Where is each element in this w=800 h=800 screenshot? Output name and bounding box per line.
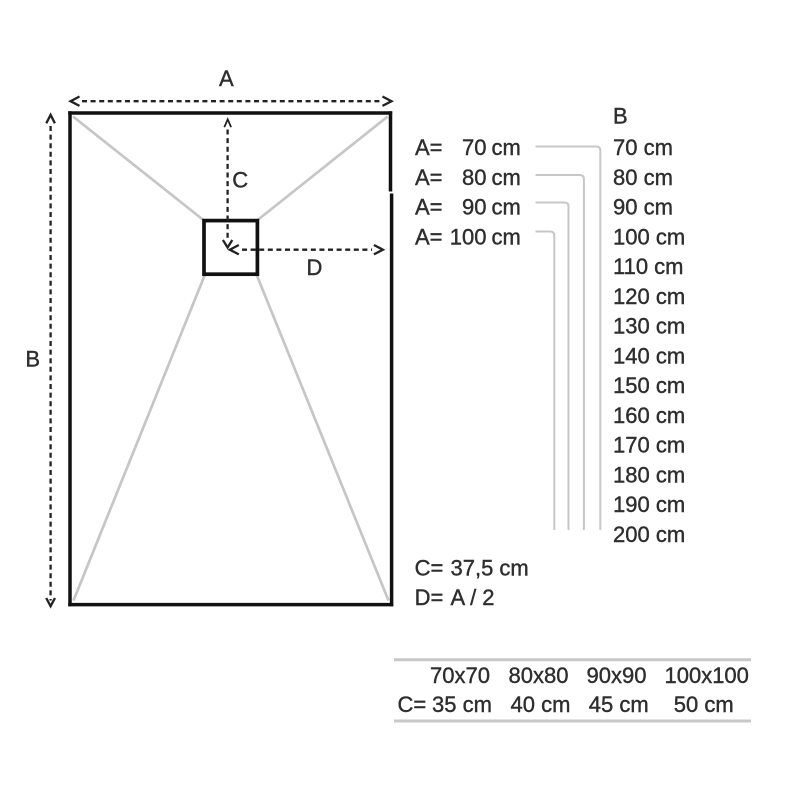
svg-text:70: 70 xyxy=(462,135,486,160)
svg-text:C=: C= xyxy=(398,692,427,717)
svg-text:70x70: 70x70 xyxy=(430,663,490,688)
svg-text:140 cm: 140 cm xyxy=(613,343,685,368)
svg-text:C=: C= xyxy=(415,556,444,581)
svg-text:70 cm: 70 cm xyxy=(613,135,673,160)
svg-text:90 cm: 90 cm xyxy=(613,195,673,220)
svg-text:D: D xyxy=(307,255,323,280)
svg-text:35 cm: 35 cm xyxy=(432,692,492,717)
svg-text:130 cm: 130 cm xyxy=(613,314,685,339)
svg-text:90: 90 xyxy=(462,195,486,220)
svg-text:100 cm: 100 cm xyxy=(613,224,685,249)
svg-text:80x80: 80x80 xyxy=(509,663,569,688)
svg-text:110 cm: 110 cm xyxy=(613,254,684,279)
svg-text:B: B xyxy=(613,104,628,129)
svg-text:cm: cm xyxy=(492,195,521,220)
svg-text:A=: A= xyxy=(415,135,443,160)
svg-text:A / 2: A / 2 xyxy=(451,585,495,610)
svg-text:90x90: 90x90 xyxy=(587,663,647,688)
svg-text:cm: cm xyxy=(492,224,521,249)
svg-text:80: 80 xyxy=(462,165,486,190)
svg-text:100x100: 100x100 xyxy=(664,663,748,688)
svg-text:cm: cm xyxy=(492,165,521,190)
svg-text:100: 100 xyxy=(450,224,487,249)
svg-text:150 cm: 150 cm xyxy=(613,373,685,398)
svg-text:D=: D= xyxy=(415,585,444,610)
svg-text:200 cm: 200 cm xyxy=(613,522,685,547)
svg-text:120 cm: 120 cm xyxy=(613,284,685,309)
svg-text:B: B xyxy=(25,347,40,372)
svg-text:37,5 cm: 37,5 cm xyxy=(451,556,529,581)
svg-text:A=: A= xyxy=(415,195,443,220)
svg-text:170 cm: 170 cm xyxy=(613,433,685,458)
svg-text:180 cm: 180 cm xyxy=(613,462,685,487)
svg-text:cm: cm xyxy=(492,135,521,160)
svg-text:A: A xyxy=(219,66,234,91)
svg-text:160 cm: 160 cm xyxy=(613,403,685,428)
svg-text:50 cm: 50 cm xyxy=(674,692,734,717)
svg-text:190 cm: 190 cm xyxy=(613,492,685,517)
svg-text:40 cm: 40 cm xyxy=(511,692,571,717)
svg-text:C: C xyxy=(232,168,248,193)
svg-text:80 cm: 80 cm xyxy=(613,165,673,190)
svg-text:A=: A= xyxy=(415,224,443,249)
svg-text:45 cm: 45 cm xyxy=(589,692,649,717)
svg-text:A=: A= xyxy=(415,165,443,190)
